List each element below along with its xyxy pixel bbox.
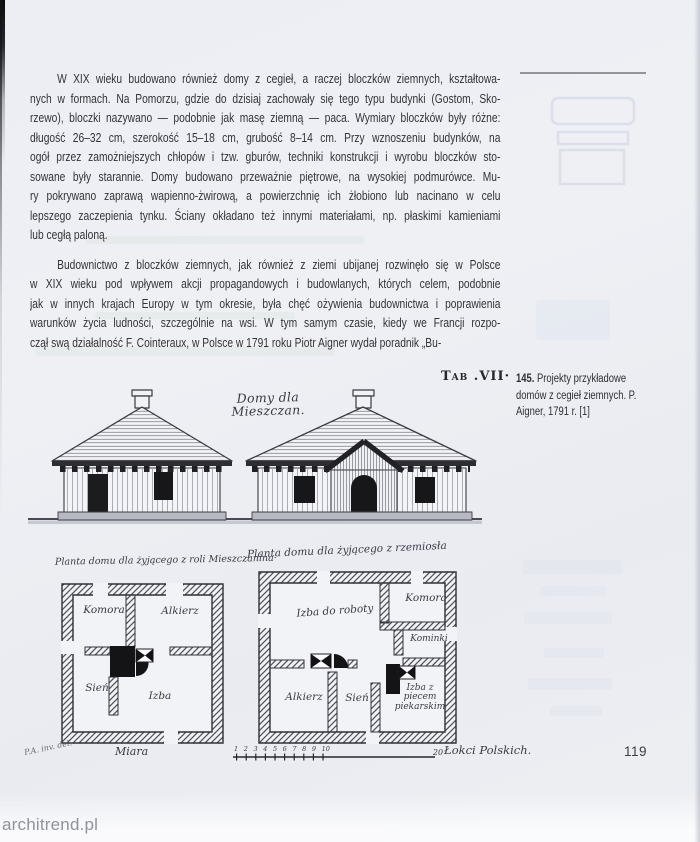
scale-tick: 8 — [302, 745, 306, 753]
scale-tick: 9 — [312, 745, 316, 753]
scale-tick: 5 — [273, 745, 277, 753]
scale-tick-numbers: 1 2 3 4 5 6 7 8 9 10 — [234, 745, 330, 753]
page-gutter-shadow — [0, 0, 2, 520]
paragraph: Budownictwo z bloczków ziemnych, jak rów… — [30, 256, 500, 354]
paragraph-line: lub cegłą paloną. — [30, 226, 500, 246]
watermark: architrend.pl — [2, 815, 98, 835]
room-label-izba-z-piecem: Izba z piecem piekarskim — [389, 684, 451, 712]
plate-title: Domy dla Mieszczan. — [202, 389, 335, 419]
scale-tick: 1 — [234, 745, 238, 753]
room-label-komora: Komora — [78, 605, 130, 616]
page-number: 119 — [624, 744, 647, 759]
scale-tick: 10 — [322, 745, 330, 753]
paragraph-line: Budownictwo z bloczków ziemnych, jak rów… — [30, 256, 500, 276]
scale-end-label: Łokci Polskich. — [444, 744, 534, 756]
page-edge-shadow — [694, 0, 700, 842]
paragraph-line: ry pokrywano zaprawą wapienno-żwirową, a… — [30, 187, 500, 207]
room-label-komora: Komora — [400, 593, 452, 604]
room-label-sien: Sień — [340, 693, 374, 704]
paragraph-line: w XIX wieku pod wpływem akcji propagando… — [30, 275, 500, 295]
room-label-alkierz: Alkierz — [280, 692, 328, 703]
scale-tick: 3 — [253, 745, 257, 753]
scale-tick: 2 — [244, 745, 248, 753]
paragraph-line: długość 26–32 cm, szerokość 15–18 cm, gr… — [30, 129, 500, 149]
plate-tab-label: Tab .VII· — [441, 369, 510, 384]
scale-tick: 4 — [263, 745, 267, 753]
scale-tick: 7 — [292, 745, 296, 753]
body-text: W XIX wieku budowano również domy z cegi… — [30, 70, 500, 363]
paragraph-line: sowane były starannie. Domy budowano prz… — [30, 168, 500, 188]
paragraph-line: lepszego zaczepienia tynku. Ściany okład… — [30, 207, 500, 227]
room-label-alkierz: Alkierz — [152, 606, 208, 617]
paragraph: W XIX wieku budowano również domy z cegi… — [30, 70, 500, 246]
paragraph-line: nych w formach. Na Pomorzu, gdzie do dzi… — [30, 90, 500, 110]
paragraph-line: jak w innych krajach Europy w tym okresi… — [30, 295, 500, 315]
page-bottom-fade — [0, 792, 700, 842]
paragraph-line: czął swą działalność F. Cointeraux, w Po… — [30, 334, 500, 354]
scale-end-value: 20 — [431, 749, 445, 757]
room-label-izba: Izba — [136, 691, 184, 702]
figure-caption-text: Projekty przykładowe domów z cegieł ziem… — [516, 373, 636, 418]
room-label-kominki: Kominki — [404, 635, 454, 644]
paragraph-line: W XIX wieku budowano również domy z cegi… — [30, 70, 500, 90]
scale-tick: 6 — [283, 745, 287, 753]
room-label-sien: Sień — [78, 683, 116, 694]
scale-label-miara: Miara — [115, 746, 155, 758]
paragraph-line: ogół przez zamożniejszych chłopów i tzw.… — [30, 148, 500, 168]
paragraph-line: rzewo), bloczki nazywano — podobnie jak … — [30, 109, 500, 129]
figure-caption: 145. Projekty przykładowe domów z cegieł… — [516, 371, 645, 421]
figure-caption-number: 145. — [516, 373, 534, 385]
paragraph-line: warunków życia ludności, szczególnie na … — [30, 314, 500, 334]
